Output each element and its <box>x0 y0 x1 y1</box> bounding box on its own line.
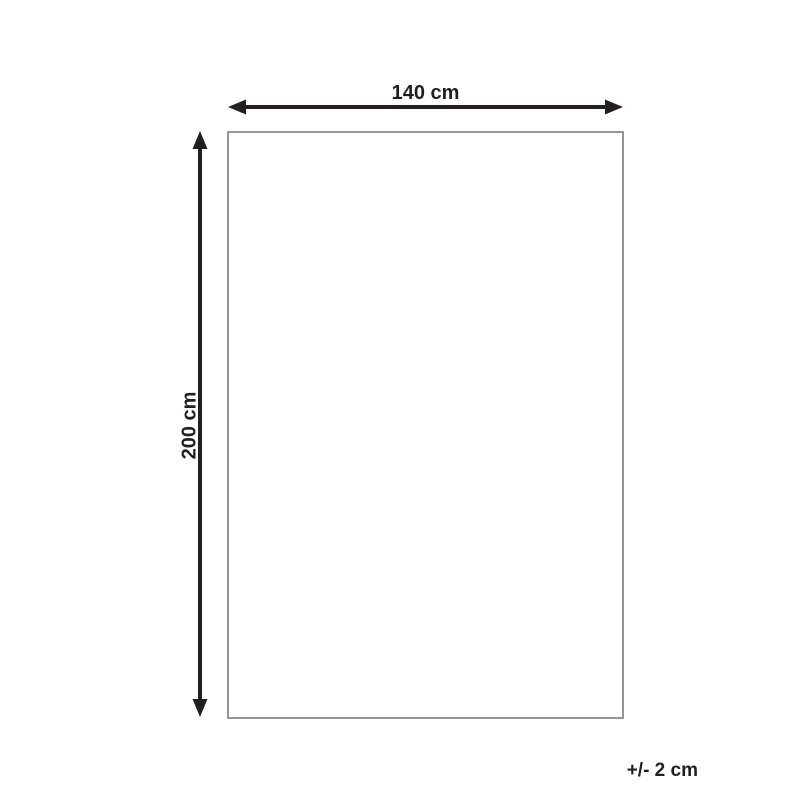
width-dimension-label: 140 cm <box>228 82 623 105</box>
arrow-head-top <box>193 131 208 149</box>
product-outline-rect <box>228 132 623 718</box>
dimension-diagram: 140 cm 200 cm +/- 2 cm <box>0 0 800 800</box>
diagram-canvas <box>0 0 800 800</box>
tolerance-label: +/- 2 cm <box>627 760 698 782</box>
arrow-head-bottom <box>193 699 208 717</box>
height-dimension-label: 200 cm <box>179 346 202 506</box>
